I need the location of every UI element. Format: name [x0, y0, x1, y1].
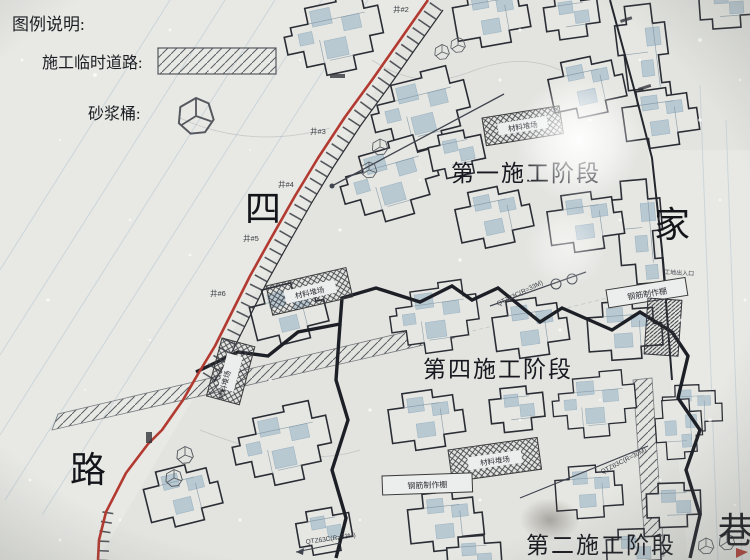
site-plan-drawing: 材料堆场 材料堆场 材料堆场 材料堆场 钢筋制作棚 钢筋制作棚 工地出入口 QT… — [0, 0, 750, 560]
photo-artifacts — [0, 0, 750, 560]
vignette — [0, 0, 750, 560]
site-plan-photo: 材料堆场 材料堆场 材料堆场 材料堆场 钢筋制作棚 钢筋制作棚 工地出入口 QT… — [0, 0, 750, 560]
